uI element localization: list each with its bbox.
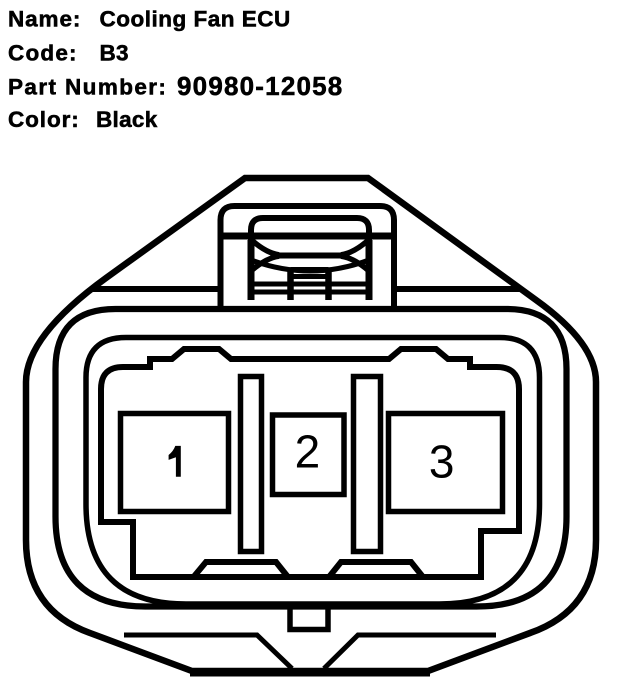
svg-text:Cooling Fan ECU: Cooling Fan ECU [100,7,291,32]
svg-text:Code:: Code: [8,41,78,66]
svg-text:Black: Black [96,107,158,132]
svg-text:Color:: Color: [8,107,80,132]
svg-text:Name:: Name: [8,7,81,32]
svg-text:90980-12058: 90980-12058 [177,71,343,101]
svg-text:2: 2 [295,426,321,478]
svg-text:3: 3 [429,436,455,488]
svg-text:Part Number:: Part Number: [8,75,167,100]
svg-text:B3: B3 [100,41,129,66]
